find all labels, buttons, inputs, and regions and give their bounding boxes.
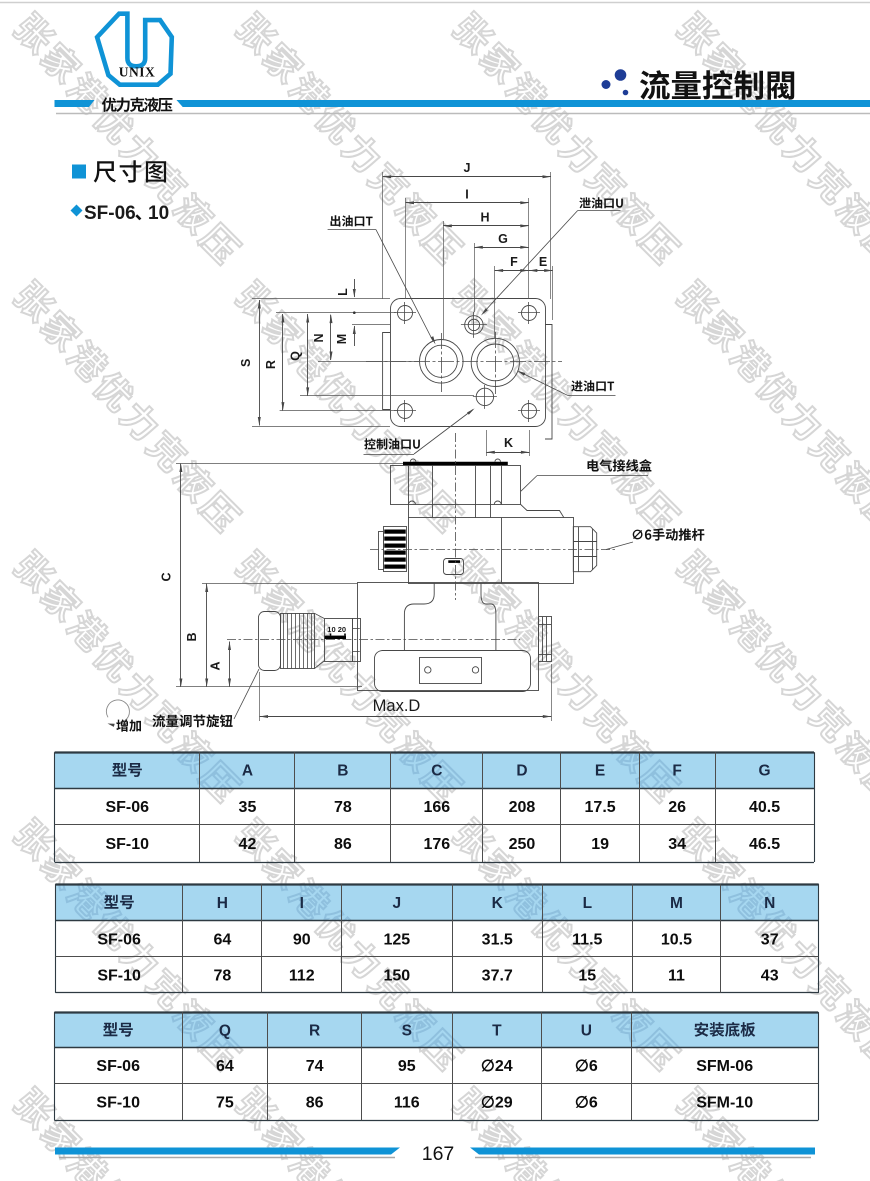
svg-text:F: F [672, 763, 681, 780]
svg-text:N: N [312, 333, 326, 342]
svg-text:10: 10 [148, 203, 169, 224]
svg-text:T: T [492, 1022, 502, 1039]
svg-text:Max.D: Max.D [373, 697, 421, 715]
svg-text:C: C [160, 572, 174, 581]
svg-text:SFM-10: SFM-10 [696, 1095, 753, 1112]
svg-text:75: 75 [216, 1095, 234, 1112]
svg-text:35: 35 [239, 799, 257, 816]
svg-text:176: 176 [423, 836, 450, 853]
svg-text:19: 19 [591, 836, 609, 853]
svg-text:S: S [402, 1022, 412, 1039]
svg-text:46.5: 46.5 [749, 836, 780, 853]
svg-text:11.5: 11.5 [572, 931, 602, 948]
svg-text:∅29: ∅29 [481, 1095, 513, 1112]
svg-text:∅24: ∅24 [481, 1058, 513, 1075]
svg-text:SF-06: SF-06 [97, 931, 141, 948]
svg-text:167: 167 [422, 1143, 455, 1165]
svg-text:86: 86 [306, 1095, 324, 1112]
svg-text:Q: Q [289, 351, 303, 361]
svg-text:K: K [492, 895, 504, 912]
svg-text:40.5: 40.5 [749, 799, 780, 816]
svg-text:78: 78 [334, 799, 352, 816]
svg-text:86: 86 [334, 836, 352, 853]
svg-text:31.5: 31.5 [482, 931, 513, 948]
svg-text:H: H [217, 895, 228, 912]
svg-text:125: 125 [383, 931, 410, 948]
svg-text:M: M [670, 895, 683, 912]
svg-text:37.7: 37.7 [482, 967, 513, 984]
svg-text:64: 64 [213, 931, 231, 948]
svg-text:166: 166 [423, 799, 450, 816]
svg-text:116: 116 [394, 1095, 420, 1112]
svg-text:I: I [465, 188, 468, 202]
svg-text:150: 150 [383, 967, 410, 984]
svg-text:15: 15 [578, 967, 596, 984]
svg-text:SF-10: SF-10 [105, 836, 149, 853]
svg-text:37: 37 [761, 931, 779, 948]
svg-text:74: 74 [306, 1058, 324, 1075]
svg-text:64: 64 [216, 1058, 234, 1075]
svg-text:N: N [764, 895, 775, 912]
svg-text:J: J [464, 161, 471, 175]
svg-text:SF-10: SF-10 [96, 1095, 140, 1112]
svg-text:90: 90 [293, 931, 311, 948]
svg-text:∅6: ∅6 [575, 1095, 598, 1112]
svg-text:10 20: 10 20 [327, 625, 346, 634]
svg-text:R: R [264, 360, 278, 369]
svg-text:L: L [336, 288, 350, 296]
svg-text:K: K [504, 436, 513, 450]
svg-text:U: U [581, 1022, 592, 1039]
svg-text:34: 34 [668, 836, 686, 853]
svg-text:G: G [759, 763, 771, 780]
svg-text:17.5: 17.5 [585, 799, 616, 816]
svg-text:UNIX: UNIX [119, 65, 156, 80]
svg-text:42: 42 [239, 836, 257, 853]
svg-text:208: 208 [509, 799, 536, 816]
svg-text:D: D [516, 763, 527, 780]
svg-text:26: 26 [668, 799, 686, 816]
svg-text:R: R [309, 1022, 320, 1039]
svg-text:C: C [431, 763, 442, 780]
svg-text:43: 43 [761, 967, 779, 984]
svg-text:H: H [480, 211, 489, 225]
svg-text:A: A [209, 661, 223, 670]
svg-text:Q: Q [219, 1022, 231, 1039]
svg-text:B: B [185, 632, 199, 641]
svg-text:112: 112 [289, 967, 315, 984]
svg-text:78: 78 [213, 967, 231, 984]
svg-text:M: M [335, 334, 349, 344]
svg-text:S: S [239, 359, 253, 367]
svg-text:F: F [510, 255, 518, 269]
svg-text:SFM-06: SFM-06 [696, 1058, 753, 1075]
svg-text:SF-06: SF-06 [84, 203, 136, 224]
svg-text:95: 95 [398, 1058, 416, 1075]
svg-text:J: J [393, 895, 402, 912]
svg-text:E: E [539, 255, 547, 269]
svg-text:250: 250 [509, 836, 536, 853]
svg-text:SF-06: SF-06 [105, 799, 149, 816]
svg-text:L: L [583, 895, 592, 912]
svg-text:A: A [242, 763, 253, 780]
svg-text:B: B [337, 763, 348, 780]
svg-text:I: I [300, 895, 304, 912]
svg-text:11: 11 [668, 967, 685, 984]
svg-text:∅6: ∅6 [575, 1058, 598, 1075]
svg-text:SF-06: SF-06 [96, 1058, 140, 1075]
svg-text:10.5: 10.5 [661, 931, 692, 948]
svg-text:SF-10: SF-10 [97, 967, 141, 984]
svg-text:E: E [595, 763, 605, 780]
svg-text:G: G [498, 232, 508, 246]
